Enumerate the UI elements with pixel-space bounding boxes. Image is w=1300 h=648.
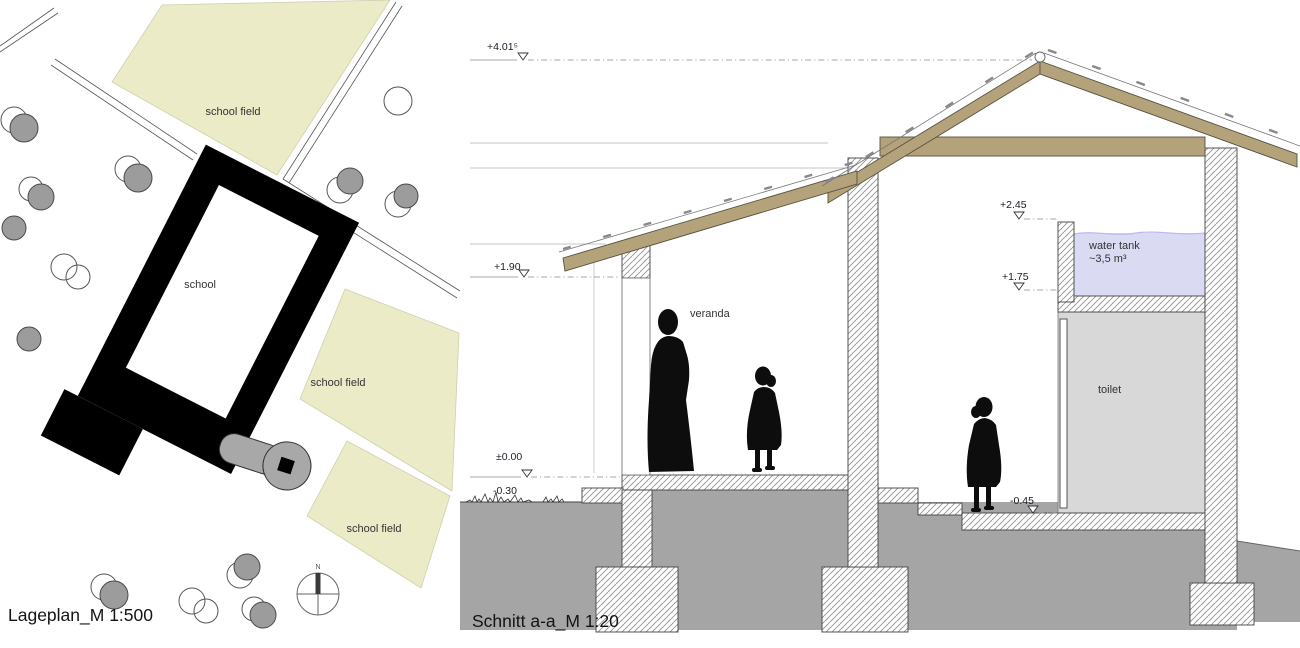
veranda-column xyxy=(622,278,650,475)
tree-icon xyxy=(179,588,205,614)
tree-icon xyxy=(17,327,41,351)
water-tank-label: water tank xyxy=(1088,240,1140,252)
water-tank-slab xyxy=(1058,296,1205,312)
tree-icon xyxy=(234,554,260,580)
adult-figure xyxy=(648,309,695,472)
floor-slab xyxy=(622,475,878,490)
compass-north-label: N xyxy=(315,564,320,571)
tree-icon xyxy=(250,602,276,628)
ridge-detail xyxy=(1035,52,1045,62)
level-label-veranda-eave: +1.90 xyxy=(494,261,521,273)
school-building xyxy=(41,138,359,520)
footing-pad-right xyxy=(1190,583,1254,625)
tree-icon xyxy=(2,216,26,240)
level-label-terrain: -0.30 xyxy=(493,485,517,497)
site-plan-title: Lageplan_M 1:500 xyxy=(8,605,153,626)
yard-ground-slab xyxy=(962,513,1237,530)
compass-icon: N xyxy=(297,564,339,615)
level-label-floor: ±0.00 xyxy=(496,451,522,463)
level-marker-ridge xyxy=(518,53,528,60)
water-tank-volume-label: ~3,5 m³ xyxy=(1089,253,1127,265)
level-label-tank-top: +2.45 xyxy=(1000,199,1027,211)
school-field-area xyxy=(112,0,390,175)
tree-icon xyxy=(28,184,54,210)
tree-icon xyxy=(124,164,152,192)
tree-icon xyxy=(194,599,218,623)
architectural-drawing-sheet: school field school field school field xyxy=(0,0,1300,648)
tree-icon xyxy=(394,184,418,208)
school-field-label: school field xyxy=(310,377,365,389)
roof-rafter-left xyxy=(828,61,1040,203)
north-arrow xyxy=(316,573,321,594)
level-marker-tank-top xyxy=(1014,212,1024,219)
wall-right-main xyxy=(1205,148,1237,583)
road-line xyxy=(0,8,58,52)
toilet-label: toilet xyxy=(1098,384,1121,396)
level-marker-tank-bottom xyxy=(1014,283,1024,290)
tree-icon xyxy=(66,265,90,289)
outdoor-step-left xyxy=(582,488,623,503)
school-field-label: school field xyxy=(346,523,401,535)
footing-pad-mid xyxy=(822,567,908,632)
level-label-yard: -0.45 xyxy=(1010,495,1034,507)
child-figure xyxy=(967,397,1002,512)
site-plan: school field school field school field xyxy=(0,0,460,648)
school-building-label: school xyxy=(184,279,216,291)
level-marker-floor xyxy=(522,470,532,477)
step-upper xyxy=(878,488,918,503)
footing-stem-left xyxy=(622,490,652,567)
step-lower xyxy=(918,503,962,515)
veranda-label: veranda xyxy=(690,308,731,320)
school-field-label: school field xyxy=(205,106,260,118)
level-label-ridge: +4.01⁵ xyxy=(487,41,518,53)
tree-icon xyxy=(384,87,412,115)
tree-icon xyxy=(51,254,77,280)
tree-icon xyxy=(10,114,38,142)
wall-left-main xyxy=(848,158,878,567)
section-title: Schnitt a-a_M 1:20 xyxy=(472,611,619,632)
tree-icon xyxy=(337,168,363,194)
level-label-tank-bottom: +1.75 xyxy=(1002,271,1029,283)
child-figure xyxy=(747,367,782,473)
veranda-rafter xyxy=(563,171,857,271)
water-tank-wall xyxy=(1058,222,1074,302)
toilet-room xyxy=(1058,312,1205,513)
section-drawing: +4.01⁵ +1.90 ±0.00 -0.30 +2.45 +1.75 -0.… xyxy=(460,0,1300,648)
toilet-door xyxy=(1060,319,1067,508)
